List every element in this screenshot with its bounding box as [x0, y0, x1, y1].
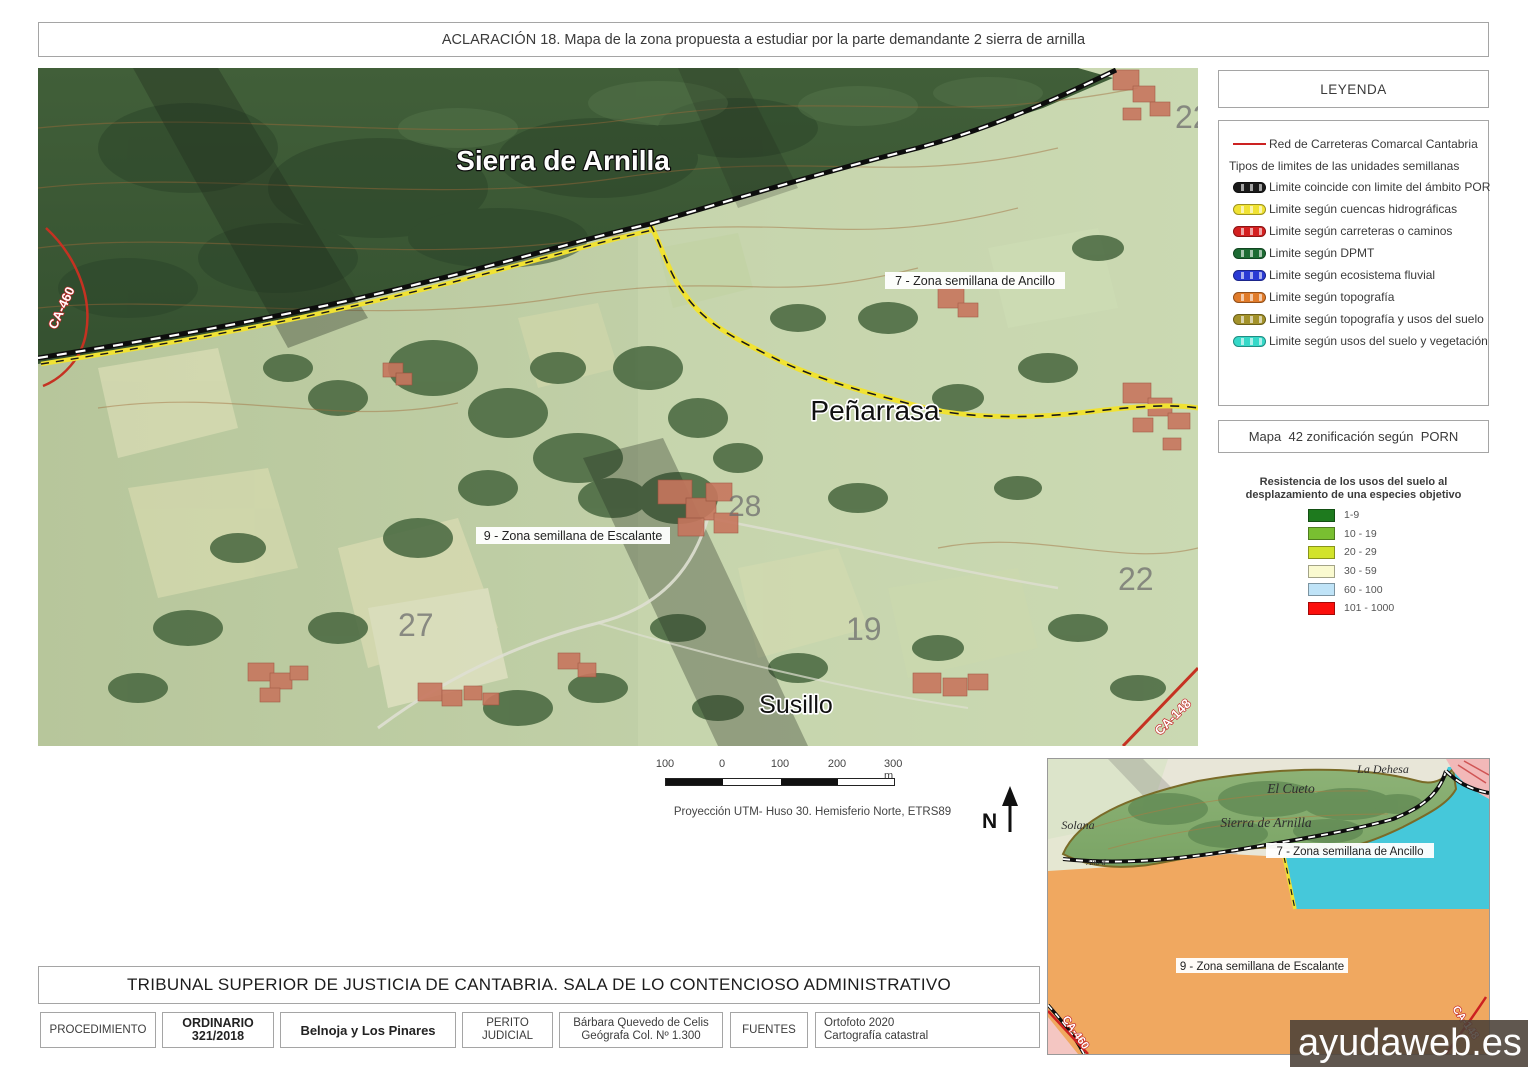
class-swatch [1308, 527, 1335, 540]
scale-tick: 100 [656, 758, 674, 770]
class-swatch [1308, 583, 1335, 596]
map42-title-box: Mapa 42 zonificación según PORN [1218, 420, 1489, 453]
legend-item: Limite según topografía [1229, 286, 1480, 308]
document-title-box: ACLARACIÓN 18. Mapa de la zona propuesta… [38, 22, 1489, 57]
limit-line-icon [1229, 226, 1269, 237]
document-title: ACLARACIÓN 18. Mapa de la zona propuesta… [442, 32, 1085, 48]
parcel-number-27: 27 [398, 607, 434, 643]
label-solana: Solana [1061, 818, 1094, 832]
main-map: Sierra de Arnilla 7 - Zona semillana de … [38, 68, 1198, 746]
legend-item: Limite según topografía y usos del suelo [1229, 308, 1480, 330]
parcel-number-28: 28 [728, 490, 761, 523]
resistance-classes: 1-9 10 - 19 20 - 29 30 - 59 60 - 100 101… [1308, 506, 1394, 618]
svg-text:9 - Zona semillana de Escalant: 9 - Zona semillana de Escalante [484, 529, 663, 543]
cell-procedimiento-value: ORDINARIO 321/2018 [162, 1012, 274, 1048]
inset-label-zona9: 9 - Zona semillana de Escalante [1176, 958, 1348, 973]
svg-text:7 - Zona semillana de Ancillo: 7 - Zona semillana de Ancillo [895, 274, 1055, 288]
map-sheet: ACLARACIÓN 18. Mapa de la zona propuesta… [0, 0, 1528, 1080]
resistance-class: 10 - 19 [1308, 525, 1394, 544]
legend-item: Limite según cuencas hidrográficas [1229, 198, 1480, 220]
scale-bar: 100 0 100 200 300 m [640, 758, 920, 790]
inset-label-zona7: 7 - Zona semillana de Ancillo [1266, 843, 1434, 858]
label-zona9: 9 - Zona semillana de Escalante [476, 527, 670, 544]
legend-item: Limite según ecosistema fluvial [1229, 264, 1480, 286]
label-alto: Alto d [1085, 858, 1106, 867]
parcel-number-22a: 22 [1175, 99, 1198, 135]
limit-line-icon [1229, 204, 1269, 215]
legend-item: Limite según carreteras o caminos [1229, 220, 1480, 242]
north-label: N [982, 810, 997, 834]
cell-fuentes-value: Ortofoto 2020 Cartografía catastral [815, 1012, 1040, 1048]
svg-text:7 - Zona semillana de Ancillo: 7 - Zona semillana de Ancillo [1276, 846, 1423, 858]
scale-bar-track [665, 778, 895, 786]
scale-tick: 0 [719, 758, 725, 770]
inset-map-frame: La Dehesa El Cueto Sierra de Arnilla Sol… [1047, 758, 1490, 1055]
red-road-line-icon [1229, 143, 1269, 145]
map42-title: Mapa 42 zonificación según PORN [1249, 429, 1459, 444]
resistance-class: 60 - 100 [1308, 580, 1394, 599]
svg-text:9 - Zona semillana de Escalant: 9 - Zona semillana de Escalante [1180, 961, 1344, 973]
scale-tick: 100 [771, 758, 789, 770]
resistance-class: 20 - 29 [1308, 543, 1394, 562]
legend-item: Limite según usos del suelo y vegetación [1229, 330, 1480, 352]
court-title: TRIBUNAL SUPERIOR DE JUSTICIA DE CANTABR… [127, 975, 951, 995]
legend-panel: Red de Carreteras Comarcal Cantabria Tip… [1218, 120, 1489, 406]
class-swatch [1308, 509, 1335, 522]
watermark: ayudaweb.es [1290, 1020, 1528, 1067]
north-arrow: N [982, 786, 1026, 836]
projection-note: Proyección UTM- Huso 30. Hemisferio Nort… [640, 806, 985, 818]
label-susillo: Susillo [759, 691, 833, 719]
limit-line-icon [1229, 314, 1269, 325]
legend-road-entry: Red de Carreteras Comarcal Cantabria [1229, 133, 1480, 155]
resistance-class: 101 - 1000 [1308, 599, 1394, 618]
legend-item: Limite según DPMT [1229, 242, 1480, 264]
cell-case-name: Belnoja y Los Pinares [280, 1012, 456, 1048]
parcel-number-22b: 22 [1118, 561, 1154, 597]
label-el-cueto: El Cueto [1266, 781, 1315, 796]
resistance-class: 30 - 59 [1308, 562, 1394, 581]
legend-title-box: LEYENDA [1218, 70, 1489, 108]
cell-fuentes-label: FUENTES [730, 1012, 808, 1048]
class-swatch [1308, 602, 1335, 615]
limit-line-icon [1229, 248, 1269, 259]
resistance-title: Resistencia de los usos del suelo al des… [1228, 476, 1479, 502]
class-swatch [1308, 546, 1335, 559]
limit-line-icon [1229, 270, 1269, 281]
class-swatch [1308, 565, 1335, 578]
inset-map: La Dehesa El Cueto Sierra de Arnilla Sol… [1048, 759, 1489, 1054]
parcel-number-19: 19 [846, 611, 882, 647]
label-la-dehesa: La Dehesa [1356, 762, 1409, 776]
cell-perito-label: PERITO JUDICIAL [462, 1012, 553, 1048]
legend-subtitle: Tipos de limites de las unidades semilla… [1229, 155, 1480, 176]
label-penarrasa: Peñarrasa [810, 395, 940, 426]
label-inset-sierra: Sierra de Arnilla [1220, 815, 1312, 830]
legend-title: LEYENDA [1320, 82, 1387, 97]
scale-tick: 200 [828, 758, 846, 770]
limit-line-icon [1229, 182, 1269, 193]
limit-line-icon [1229, 292, 1269, 303]
north-arrow-icon [998, 786, 1022, 836]
resistance-class: 1-9 [1308, 506, 1394, 525]
legend-item: Limite coincide con limite del ámbito PO… [1229, 176, 1480, 198]
label-sierra-de-arnilla: Sierra de Arnilla [456, 145, 670, 176]
limit-line-icon [1229, 336, 1269, 347]
cell-procedimiento-label: PROCEDIMIENTO [40, 1012, 156, 1048]
label-zona7: 7 - Zona semillana de Ancillo [885, 272, 1065, 289]
court-title-box: TRIBUNAL SUPERIOR DE JUSTICIA DE CANTABR… [38, 966, 1040, 1004]
cell-perito-name: Bárbara Quevedo de Celis Geógrafa Col. N… [559, 1012, 723, 1048]
